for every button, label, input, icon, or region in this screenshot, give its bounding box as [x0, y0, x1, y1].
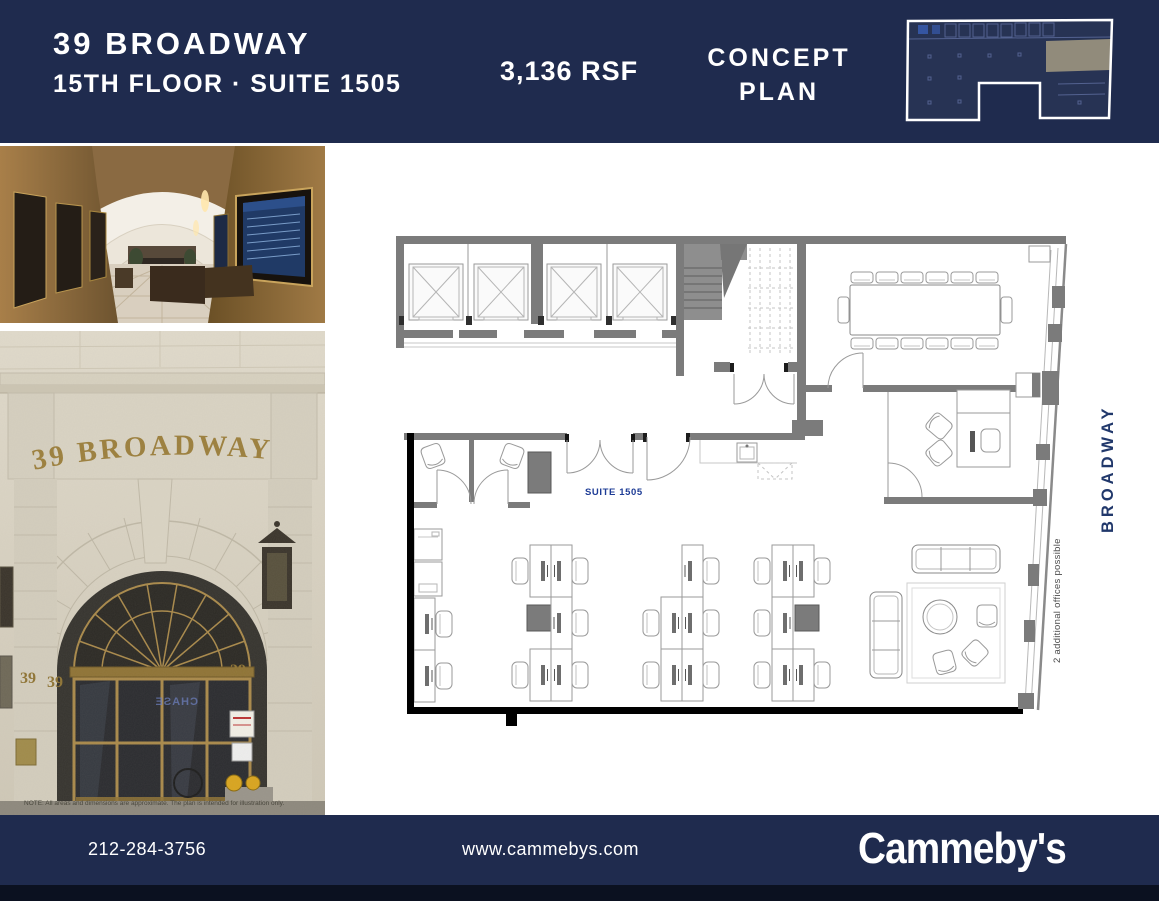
lobby-photo: [0, 146, 325, 323]
wall-sconce: [201, 190, 209, 212]
plan-type-label: CONCEPT PLAN: [693, 41, 865, 109]
rsf-label: 3,136 RSF: [500, 56, 638, 87]
sofa: [870, 592, 902, 678]
wall-sconce: [193, 220, 199, 236]
floor-suite: 15TH FLOOR · SUITE 1505: [53, 70, 401, 99]
vestibule-doors: [734, 374, 794, 404]
round-table: [923, 600, 957, 634]
lounge-area: [870, 545, 1005, 683]
open-workspace: [414, 529, 830, 702]
cammebys-logo: Cammeby's: [858, 824, 1066, 874]
directory-panel: [214, 214, 228, 269]
stair-dashed-lines: [748, 248, 796, 356]
floor-plan: SUITE 1505 2 additional offices possible…: [386, 226, 1159, 738]
pantry-appliance: [758, 463, 792, 479]
guest-chair: [924, 411, 954, 440]
phone-room-chair: [420, 442, 446, 470]
suite-label: SUITE 1505: [585, 487, 643, 498]
broadway-street-label: BROADWAY: [1099, 404, 1117, 533]
private-office: [884, 390, 1036, 504]
flyer-page: 39 BROADWAY 15TH FLOOR · SUITE 1505 3,13…: [0, 0, 1159, 901]
building-address: 39 BROADWAY 15TH FLOOR · SUITE 1505: [53, 27, 401, 99]
key-plan-outline: [907, 20, 1112, 120]
storage-closet: [528, 452, 551, 493]
key-plan: [893, 9, 1148, 133]
lounge-chair: [977, 605, 997, 627]
stone-texture: [0, 331, 325, 815]
suite-entry-doors: [567, 440, 633, 473]
entrance-photo: 39 BROADWAY: [0, 331, 325, 815]
website-url: www.cammebys.com: [462, 839, 639, 860]
plan-type-line2: PLAN: [693, 75, 865, 109]
guest-chair: [924, 438, 954, 467]
conference-room: [806, 272, 1036, 392]
footer-bar: 212-284-3756 www.cammebys.com Cammeby's: [0, 815, 1159, 885]
sofa: [912, 545, 1000, 573]
copier-station: [414, 529, 442, 596]
stairwell: [676, 244, 806, 436]
pantry: [633, 420, 823, 480]
lounge-chair: [960, 638, 990, 668]
lounge-chair: [932, 649, 957, 675]
office-monitor: [970, 431, 975, 452]
offices-annotation: 2 additional offices possible: [1052, 538, 1063, 663]
office-credenza: [957, 390, 1010, 413]
conference-table: [850, 285, 1000, 335]
header-bar: 39 BROADWAY 15TH FLOOR · SUITE 1505 3,13…: [0, 0, 1159, 143]
phone-room-chair: [499, 442, 525, 470]
building-name: 39 BROADWAY: [53, 27, 401, 61]
disclaimer-note: NOTE: All areas and dimensions are appro…: [24, 800, 284, 807]
plan-type-line1: CONCEPT: [693, 41, 865, 75]
office-chair: [981, 429, 1000, 452]
phone-number: 212-284-3756: [88, 839, 206, 860]
bottom-accent-strip: [0, 885, 1159, 901]
